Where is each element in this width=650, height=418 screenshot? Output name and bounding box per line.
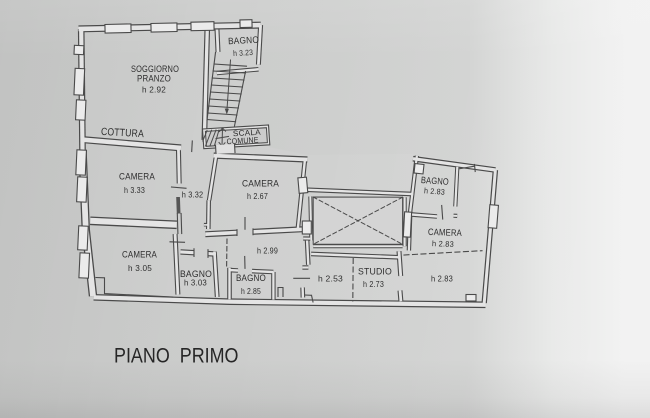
svg-text:h 2.83: h 2.83 <box>424 186 446 196</box>
svg-text:h 3.32: h 3.32 <box>182 191 204 200</box>
svg-text:h 2.53: h 2.53 <box>318 275 343 284</box>
svg-text:BAGNO: BAGNO <box>180 269 212 279</box>
svg-text:h 2.99: h 2.99 <box>257 247 278 256</box>
svg-text:h 3.03: h 3.03 <box>184 279 207 288</box>
svg-text:BAGNO: BAGNO <box>421 175 450 187</box>
svg-text:h 2.83: h 2.83 <box>431 275 453 284</box>
svg-text:BAGNO: BAGNO <box>228 35 259 47</box>
svg-text:STUDIO: STUDIO <box>358 267 392 277</box>
svg-text:COTTURA: COTTURA <box>101 126 145 140</box>
svg-text:PRANZO: PRANZO <box>137 74 171 84</box>
svg-text:SOGGIORNO: SOGGIORNO <box>131 64 179 74</box>
svg-text:h 2.85: h 2.85 <box>241 287 261 296</box>
svg-text:h 2.83: h 2.83 <box>432 239 455 249</box>
svg-text:h 3.05: h 3.05 <box>128 264 152 273</box>
svg-text:COMUNE: COMUNE <box>226 135 258 146</box>
svg-text:CAMERA: CAMERA <box>242 179 280 189</box>
svg-text:h 2.67: h 2.67 <box>247 192 268 201</box>
svg-text:CAMERA: CAMERA <box>119 172 156 182</box>
svg-text:CAMERA: CAMERA <box>428 227 463 238</box>
svg-text:CAMERA: CAMERA <box>122 250 158 260</box>
svg-text:BAGNO: BAGNO <box>236 273 266 283</box>
svg-text:PIANO PRIMO: PIANO PRIMO <box>114 344 239 368</box>
svg-text:h 2.73: h 2.73 <box>363 280 384 289</box>
svg-text:h 3.23: h 3.23 <box>233 48 254 58</box>
svg-text:h 3.33: h 3.33 <box>124 186 145 195</box>
svg-text:h 2.92: h 2.92 <box>142 86 166 95</box>
